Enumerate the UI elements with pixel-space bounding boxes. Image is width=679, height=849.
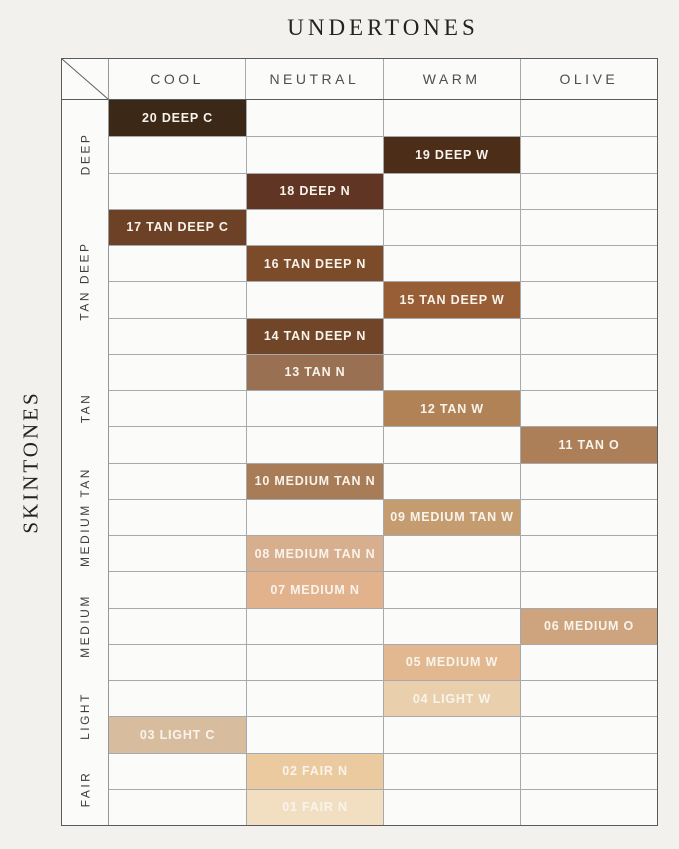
shade-cell-03-light-c: 03 LIGHT C [109,716,246,752]
empty-cell [383,173,520,209]
shade-cell-16-tan-deep-n: 16 TAN DEEP N [246,245,383,281]
shade-label: 12 TAN W [420,402,484,416]
shade-label: 09 MEDIUM TAN W [390,510,514,524]
empty-cell [109,281,246,317]
column-header-cool: COOL [109,59,245,99]
empty-cell [520,789,657,825]
empty-cell [246,100,383,136]
shade-label: 15 TAN DEEP W [399,293,504,307]
row-group-light: LIGHT [62,680,108,753]
empty-cell [520,716,657,752]
shade-label: 17 TAN DEEP C [126,220,228,234]
shade-cell-05-medium-w: 05 MEDIUM W [383,644,520,680]
row-group-label: FAIR [78,770,92,807]
empty-cell [109,535,246,571]
empty-cell [246,426,383,462]
shade-cell-01-fair-n: 01 FAIR N [246,789,383,825]
empty-cell [520,535,657,571]
empty-cell [520,136,657,172]
empty-cell [520,571,657,607]
empty-cell [383,463,520,499]
corner-cell [62,59,109,100]
column-headers: COOLNEUTRALWARMOLIVE [109,59,657,100]
empty-cell [109,173,246,209]
empty-cell [520,463,657,499]
empty-cell [246,644,383,680]
shade-cell-12-tan-w: 12 TAN W [383,390,520,426]
shade-cell-04-light-w: 04 LIGHT W [383,680,520,716]
shade-label: 18 DEEP N [280,184,351,198]
shade-cell-09-medium-tan-w: 09 MEDIUM TAN W [383,499,520,535]
shade-cell-11-tan-o: 11 TAN O [520,426,657,462]
empty-cell [109,789,246,825]
diagonal-line [62,59,108,99]
empty-cell [520,753,657,789]
empty-cell [383,571,520,607]
row-group-label: TAN DEEP [78,242,92,321]
shade-cell-15-tan-deep-w: 15 TAN DEEP W [383,281,520,317]
empty-cell [109,499,246,535]
empty-cell [109,753,246,789]
shade-cell-02-fair-n: 02 FAIR N [246,753,383,789]
shade-label: 06 MEDIUM O [544,619,634,633]
row-group-deep: DEEP [62,100,108,209]
empty-cell [383,426,520,462]
empty-cell [520,354,657,390]
shade-cell-07-medium-n: 07 MEDIUM N [246,571,383,607]
skintone-group-column: DEEPTAN DEEPTANMEDIUM TANMEDIUMLIGHTFAIR [62,100,109,825]
row-group-label: LIGHT [78,692,92,740]
empty-cell [383,789,520,825]
empty-cell [383,209,520,245]
shade-grid: 20 DEEP C19 DEEP W18 DEEP N17 TAN DEEP C… [109,100,657,825]
empty-cell [246,136,383,172]
empty-cell [520,173,657,209]
undertones-title: UNDERTONES [108,15,658,41]
empty-cell [246,209,383,245]
empty-cell [383,608,520,644]
shade-cell-19-deep-w: 19 DEEP W [383,136,520,172]
row-group-medium-tan: MEDIUM TAN [62,463,108,572]
shade-label: 08 MEDIUM TAN N [255,547,376,561]
column-header-warm: WARM [383,59,520,99]
empty-cell [109,426,246,462]
row-group-tan-deep: TAN DEEP [62,209,108,354]
shade-cell-08-medium-tan-n: 08 MEDIUM TAN N [246,535,383,571]
row-group-medium: MEDIUM [62,571,108,680]
shade-label: 11 TAN O [558,438,619,452]
shade-label: 19 DEEP W [415,148,489,162]
shade-chart-page: UNDERTONES SKINTONES COOLNEUTRALWARMOLIV… [0,0,679,849]
empty-cell [520,209,657,245]
empty-cell [520,680,657,716]
empty-cell [109,136,246,172]
empty-cell [383,100,520,136]
shade-label: 02 FAIR N [282,764,348,778]
empty-cell [109,463,246,499]
shade-cell-10-medium-tan-n: 10 MEDIUM TAN N [246,463,383,499]
empty-cell [383,753,520,789]
empty-cell [520,245,657,281]
shade-cell-14-tan-deep-n: 14 TAN DEEP N [246,318,383,354]
shade-label: 13 TAN N [284,365,345,379]
shade-label: 14 TAN DEEP N [264,329,366,343]
empty-cell [109,644,246,680]
empty-cell [383,245,520,281]
empty-cell [520,644,657,680]
shade-label: 05 MEDIUM W [406,655,498,669]
empty-cell [109,608,246,644]
empty-cell [109,318,246,354]
skintones-title: SKINTONES [19,390,44,533]
empty-cell [109,245,246,281]
shade-cell-13-tan-n: 13 TAN N [246,354,383,390]
shade-cell-06-medium-o: 06 MEDIUM O [520,608,657,644]
shade-cell-17-tan-deep-c: 17 TAN DEEP C [109,209,246,245]
empty-cell [246,608,383,644]
empty-cell [520,281,657,317]
shade-cell-18-deep-n: 18 DEEP N [246,173,383,209]
column-header-neutral: NEUTRAL [245,59,382,99]
empty-cell [383,318,520,354]
empty-cell [520,318,657,354]
shade-label: 01 FAIR N [282,800,348,814]
row-group-fair: FAIR [62,753,108,826]
empty-cell [246,680,383,716]
shade-label: 04 LIGHT W [413,692,491,706]
row-group-label: MEDIUM [78,594,92,658]
shade-label: 20 DEEP C [142,111,213,125]
shade-label: 07 MEDIUM N [270,583,359,597]
row-group-tan: TAN [62,354,108,463]
empty-cell [246,390,383,426]
column-header-olive: OLIVE [520,59,657,99]
shade-label: 16 TAN DEEP N [264,257,366,271]
shade-label: 10 MEDIUM TAN N [255,474,376,488]
empty-cell [520,100,657,136]
empty-cell [109,390,246,426]
empty-cell [246,499,383,535]
empty-cell [520,390,657,426]
empty-cell [109,680,246,716]
empty-cell [109,354,246,390]
shade-matrix-table: COOLNEUTRALWARMOLIVE DEEPTAN DEEPTANMEDI… [61,58,658,826]
empty-cell [109,571,246,607]
empty-cell [383,535,520,571]
row-group-label: TAN [78,393,92,424]
empty-cell [520,499,657,535]
shade-cell-20-deep-c: 20 DEEP C [109,100,246,136]
empty-cell [383,716,520,752]
row-group-label: MEDIUM TAN [78,467,92,567]
empty-cell [246,716,383,752]
row-group-label: DEEP [78,133,92,176]
empty-cell [383,354,520,390]
empty-cell [246,281,383,317]
shade-label: 03 LIGHT C [140,728,215,742]
